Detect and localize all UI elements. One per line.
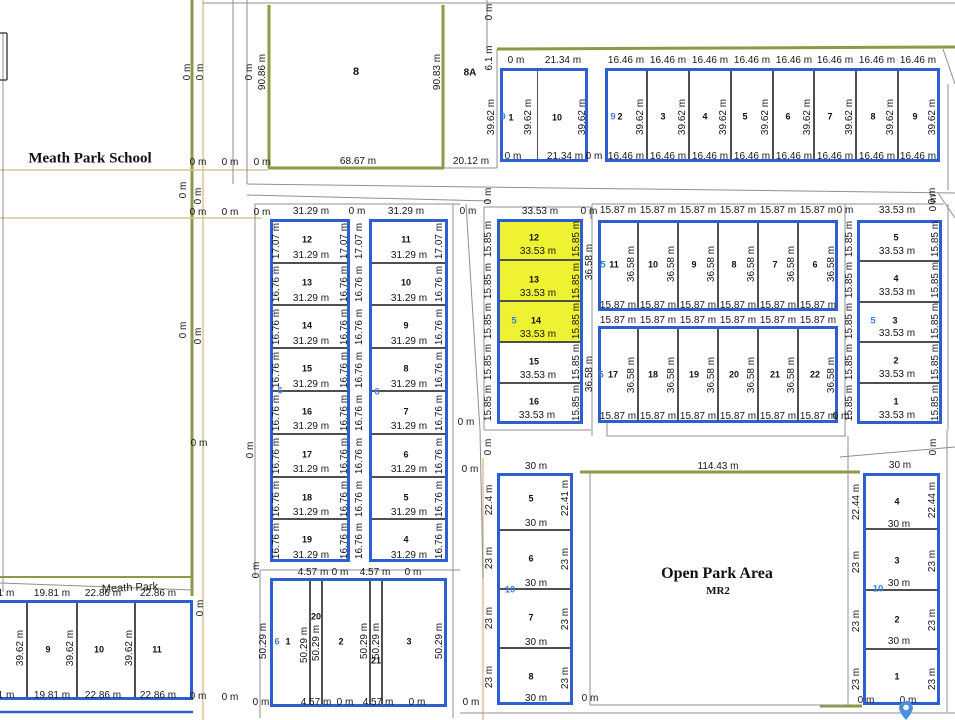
dimension-label: 33.53 m [879,329,915,339]
dimension-label: 15.87 m [680,316,716,326]
dimension-label: 16.76 m [435,523,445,559]
dimension-label: 0 m [245,64,255,81]
dimension-label: 15.87 m [760,412,796,422]
lot-number-label: 2 [893,357,898,366]
dimension-label: 23 m [852,610,862,632]
dimension-label: 33.53 m [520,371,556,381]
dimension-label: 15.87 m [800,412,836,422]
dimension-label: 0 m [485,4,495,21]
dimension-label: 31.29 m [391,294,427,304]
dimension-label: 15.87 m [800,206,836,216]
block-number-label: 6 [274,637,279,647]
dimension-label: 16.46 m [817,56,853,66]
dimension-label: 16.76 m [272,481,282,517]
dimension-label: 0 m [190,692,207,702]
dimension-label: 16.76 m [340,523,350,559]
dimension-label: 31.29 m [293,422,329,432]
dimension-label: 16.76 m [355,438,365,474]
dimension-label: 16.76 m [435,309,445,345]
dimension-label: 15.87 m [680,206,716,216]
dimension-label: 50.29 m [360,623,370,659]
dimension-label: 23 m [852,551,862,573]
dimension-label: 16.76 m [340,395,350,431]
lot-number-label: 20 [729,371,739,380]
dimension-label: 0 m [349,207,366,217]
dimension-label: 17.07 m [435,223,445,259]
dimension-label: 31.29 m [391,551,427,561]
plat-map: 0 m0 m0 m90.86 m90.83 m0 m6.1 m0 m0 m0 m… [0,0,955,720]
dimension-label: 36.58 m [787,246,797,282]
dimension-label: 20.12 m [453,157,489,167]
block-number-label: 5 [870,316,875,326]
dimension-label: 16.46 m [900,152,936,162]
dimension-label: 15.87 m [680,412,716,422]
lot-number-label: 18 [302,494,312,503]
dimension-label: 30 m [525,694,547,704]
lot-number-label: 11 [152,646,162,655]
dimension-label: 16.76 m [340,352,350,388]
lot-number-label: 8 [870,113,875,122]
lot-number-label: 4 [403,536,408,545]
dimension-label: 31.29 m [293,294,329,304]
dimension-label: 31.29 m [293,551,329,561]
dimension-label: 15.87 m [760,206,796,216]
dimension-label: 90.83 m [433,54,443,90]
dimension-label: 16.76 m [435,266,445,302]
labels-layer: 0 m0 m0 m90.86 m90.83 m0 m6.1 m0 m0 m0 m… [0,0,955,720]
dimension-label: 23 m [561,608,571,630]
dimension-label: 0 m [929,195,939,212]
lot-number-label: 16 [302,408,312,417]
dimension-label: 16.76 m [355,266,365,302]
dimension-label: 15.87 m [640,412,676,422]
dimension-label: 0 m [458,418,475,428]
dimension-label: 15.87 m [720,412,756,422]
dimension-label: 31.29 m [391,337,427,347]
dimension-label: 33.53 m [520,247,556,257]
dimension-label: 15.85 m [931,385,941,421]
dimension-label: 16.76 m [435,352,445,388]
dimension-label: 36.58 m [827,357,837,393]
dimension-label: 15.85 m [572,303,582,339]
dimension-label: 0 m [508,56,525,66]
dimension-label: 15.85 m [484,221,494,257]
lot-number-label: 20 [311,613,321,622]
dimension-label: 15.85 m [484,303,494,339]
dimension-label: 16.76 m [435,438,445,474]
dimension-label: 0 m [462,465,479,475]
block-number-label: 9 [610,112,615,122]
dimension-label: 22.86 m [85,691,121,701]
lot-number-label: 17 [302,451,312,460]
lot-number-label: 5 [742,113,747,122]
dimension-label: 15.85 m [931,303,941,339]
dimension-label: 15.87 m [800,301,836,311]
lot-number-label: 17 [608,371,618,380]
dimension-label: 15.87 m [760,301,796,311]
dimension-label: 15.87 m [600,301,636,311]
dimension-label: 15.87 m [640,206,676,216]
dimension-label: 16.46 m [650,56,686,66]
dimension-label: 30 m [525,638,547,648]
dimension-label: 15.87 m [600,412,636,422]
dimension-label: 15.85 m [845,262,855,298]
dimension-label: 0 m [222,208,239,218]
lot-number-label: 1 [285,638,290,647]
dimension-label: 0 m [179,182,189,199]
dimension-label: 0 m [405,568,422,578]
dimension-label: 36.58 m [667,246,677,282]
dimension-label: 16.46 m [734,152,770,162]
dimension-label: 114.43 m [698,462,739,472]
lot-number-label: 7 [772,261,777,270]
dimension-label: 16.46 m [608,56,644,66]
lot-number-label: 6 [812,261,817,270]
dimension-label: 1 m [0,589,14,599]
dimension-label: 0 m [254,158,271,168]
dimension-label: 33.53 m [879,288,915,298]
dimension-label: 16.46 m [817,152,853,162]
lot-number-label: 4 [893,275,898,284]
block-number-label: 6 [374,387,379,397]
lot-number-label: 11 [401,236,411,245]
dimension-label: 0 m [582,694,599,704]
lot-number-label: 10 [401,279,411,288]
lot-number-label: 13 [302,279,312,288]
dimension-label: 33.53 m [519,411,555,421]
dimension-label: 22.86 m [140,589,176,599]
dimension-label: 22.86 m [85,589,121,599]
dimension-label: 16.76 m [435,395,445,431]
dimension-label: 15.87 m [600,316,636,326]
dimension-label: 30 m [889,461,911,471]
lot-number-label: 9 [45,646,50,655]
lot-number-label: 19 [689,371,699,380]
dimension-label: 39.62 m [636,99,646,135]
dimension-label: 30 m [888,579,910,589]
dimension-label: 1 m [0,691,14,701]
dimension-label: 16.76 m [272,266,282,302]
dimension-label: 31.29 m [391,422,427,432]
lot-number-label: 5 [893,234,898,243]
dimension-label: 36.58 m [747,246,757,282]
dimension-label: 0 m [196,64,206,81]
block-number-label: 9 [500,112,505,122]
dimension-label: 31.29 m [293,380,329,390]
dimension-label: 0 m [194,328,204,345]
dimension-label: 0 m [246,442,256,459]
lot-number-label: 6 [785,113,790,122]
dimension-label: 15.87 m [640,316,676,326]
dimension-label: 15.85 m [572,344,582,380]
dimension-label: 4.57 m [298,568,329,578]
dimension-label: 39.62 m [886,99,896,135]
lot-number-label: 8 [403,365,408,374]
dimension-label: 36.58 m [787,357,797,393]
lot-number-label: 18 [648,371,658,380]
dimension-label: 30 m [888,637,910,647]
lot-number-label: 13 [529,276,539,285]
dimension-label: 0 m [337,698,354,708]
lot-number-label: 12 [529,234,539,243]
lot-number-label: 11 [609,261,619,270]
dimension-label: 16.76 m [340,438,350,474]
dimension-label: 0 m [484,188,494,205]
lot-number-label: 3 [660,113,665,122]
lot-number-label: 7 [403,408,408,417]
dimension-label: 31.29 m [293,207,329,217]
dimension-label: 23 m [485,607,495,629]
dimension-label: 33.53 m [520,289,556,299]
dimension-label: 16.76 m [355,395,365,431]
dimension-label: 15.85 m [572,221,582,257]
dimension-label: 19.81 m [34,691,70,701]
dimension-label: 16.76 m [435,481,445,517]
lot-number-label: 8 [731,261,736,270]
lot-number-label: 8 [528,673,533,682]
dimension-label: 15.87 m [720,301,756,311]
lot-number-label: 21 [770,371,780,380]
dimension-label: 39.62 m [678,99,688,135]
dimension-label: 4.57 m [301,698,332,708]
dimension-label: 16.76 m [355,481,365,517]
dimension-label: 16.76 m [355,352,365,388]
dimension-label: 15.85 m [572,263,582,299]
lot-number-label: 15 [529,358,539,367]
dimension-label: 23 m [561,548,571,570]
lot-number-label: 12 [302,236,312,245]
dimension-label: 39.62 m [845,99,855,135]
dimension-label: 4.57 m [360,568,391,578]
dimension-label: 16.76 m [355,309,365,345]
dimension-label: 0 m [253,698,270,708]
dimension-label: 0 m [252,562,262,579]
dimension-label: 16.76 m [272,395,282,431]
dimension-label: 39.62 m [66,630,76,666]
dimension-label: 15.85 m [572,385,582,421]
dimension-label: 17.07 m [340,223,350,259]
dimension-label: 50.29 m [300,627,310,663]
dimension-label: 0 m [196,600,206,617]
lot-number-label: 9 [912,113,917,122]
dimension-label: 0 m [179,322,189,339]
dimension-label: 0 m [484,439,494,456]
dimension-label: 23 m [928,668,938,690]
dimension-label: 15.85 m [845,303,855,339]
dimension-label: 39.62 m [16,630,26,666]
dimension-label: 22.86 m [140,691,176,701]
dimension-label: 23 m [928,550,938,572]
location-pin-icon[interactable] [899,701,913,720]
dimension-label: 36.58 m [585,244,595,280]
lot-number-label: 1 [508,114,513,123]
dimension-label: 15.85 m [484,344,494,380]
dimension-label: 23 m [561,667,571,689]
dimension-label: 0 m [191,439,208,449]
lot-number-label: 5 [403,494,408,503]
dimension-label: 15.85 m [845,385,855,421]
dimension-label: 21.34 m [547,152,583,162]
lot-number-label: 10 [94,646,104,655]
lot-number-label: 1 [894,673,899,682]
dimension-label: 0 m [581,207,598,217]
dimension-label: 15.87 m [640,301,676,311]
dimension-label: 0 m [586,152,603,162]
dimension-label: 16.76 m [340,266,350,302]
lot-number-label: 21 [371,657,381,666]
dimension-label: 15.87 m [720,316,756,326]
dimension-label: 16.46 m [859,56,895,66]
dimension-label: 50.29 m [312,625,322,661]
dimension-label: 30 m [525,579,547,589]
lot-number-label: 4 [702,113,707,122]
dimension-label: 33.53 m [522,207,558,217]
dimension-label: 39.62 m [719,99,729,135]
dimension-label: 16.46 m [776,56,812,66]
dimension-label: 22.44 m [852,484,862,520]
block-number-label: 5 [600,260,605,270]
block-number-label: 10 [505,585,516,595]
lot-number-label: 14 [531,317,541,326]
dimension-label: 30 m [525,519,547,529]
dimension-label: 39.62 m [761,99,771,135]
dimension-label: 4.57 m [363,698,394,708]
dimension-label: 0 m [837,206,854,216]
lot-number-label: 6 [403,451,408,460]
lot-number-label: 3 [892,317,897,326]
dimension-label: 39.62 m [524,99,534,135]
lot-number-label: 7 [827,113,832,122]
dimension-label: 16.46 m [859,152,895,162]
dimension-label: 31.29 m [391,508,427,518]
dimension-label: 16.46 m [650,152,686,162]
dimension-label: 15.87 m [680,301,716,311]
dimension-label: 16.76 m [272,523,282,559]
dimension-label: 0 m [194,188,204,205]
lot-number-label: 19 [302,536,312,545]
lot-number-label: 15 [302,365,312,374]
dimension-label: 0 m [190,208,207,218]
dimension-label: 0 m [858,696,875,706]
dimension-label: 23 m [485,666,495,688]
lot-number-label: 22 [810,371,820,380]
dimension-label: 36.58 m [627,246,637,282]
dimension-label: 31.29 m [391,251,427,261]
dimension-label: 0 m [254,208,271,218]
lot-number-label: 14 [302,322,312,331]
dimension-label: 36.58 m [667,357,677,393]
dimension-label: 15.85 m [931,344,941,380]
block-number-label: 10 [873,584,884,594]
lot-number-label: 2 [617,113,622,122]
lot-number-label: 16 [529,398,539,407]
lot-number-label: 3 [406,638,411,647]
dimension-label: 31.29 m [293,337,329,347]
dimension-label: 31.29 m [388,207,424,217]
block-number-label: 5 [598,370,603,380]
dimension-label: 15.87 m [800,316,836,326]
dimension-label: 23 m [485,547,495,569]
block-number-label: 6 [277,386,282,396]
dimension-label: 39.62 m [487,99,497,135]
dimension-label: 36.58 m [627,357,637,393]
dimension-label: 31.29 m [293,251,329,261]
dimension-label: 16.76 m [272,438,282,474]
dimension-label: 0 m [183,64,193,81]
dimension-label: 0 m [222,158,239,168]
dimension-label: 0 m [222,693,239,703]
lot-number-label: 4 [894,498,899,507]
dimension-label: 16.46 m [900,56,936,66]
dimension-label: 36.58 m [747,357,757,393]
lot-number-label: 10 [648,261,658,270]
dimension-label: 50.29 m [372,623,382,659]
dimension-label: 17.07 m [355,223,365,259]
dimension-label: 19.81 m [34,589,70,599]
dimension-label: 15.85 m [484,263,494,299]
dimension-label: 0 m [190,158,207,168]
lot-number-label: 10 [552,114,562,123]
dimension-label: 36.58 m [827,246,837,282]
dimension-label: 16.46 m [608,152,644,162]
dimension-label: 90.86 m [258,54,268,90]
dimension-label: 23 m [928,609,938,631]
block-number-label: 5 [511,316,516,326]
dimension-label: 15.85 m [931,262,941,298]
dimension-label: 16.46 m [734,56,770,66]
dimension-label: 33.53 m [879,247,915,257]
dimension-label: 36.58 m [585,356,595,392]
dimension-label: 39.62 m [578,99,588,135]
lot-number-label: 7 [528,614,533,623]
lot-number-label: 9 [403,322,408,331]
dimension-label: 0 m [505,152,522,162]
dimension-label: 39.62 m [125,630,135,666]
dimension-label: 16.76 m [340,481,350,517]
dimension-label: 33.53 m [879,411,915,421]
dimension-label: 31.29 m [293,508,329,518]
lot-number-label: 2 [894,616,899,625]
dimension-label: 39.62 m [803,99,813,135]
dimension-label: 6.1 m [485,45,495,70]
dimension-label: 33.53 m [879,370,915,380]
lot-number-label: 6 [528,555,533,564]
dimension-label: 16.76 m [355,523,365,559]
dimension-label: 31.29 m [391,380,427,390]
dimension-label: 33.53 m [879,206,915,216]
dimension-label: 15.85 m [845,344,855,380]
dimension-label: 68.67 m [340,157,376,167]
dimension-label: 0 m [929,439,939,456]
dimension-label: 15.87 m [760,316,796,326]
dimension-label: 17.07 m [272,223,282,259]
dimension-label: 50.29 m [259,623,269,659]
dimension-label: 36.58 m [707,357,717,393]
dimension-label: 15.85 m [845,221,855,257]
lot-number-label: 3 [894,557,899,566]
dimension-label: 0 m [463,698,480,708]
dimension-label: 16.76 m [272,309,282,345]
dimension-label: 30 m [888,520,910,530]
dimension-label: 0 m [460,207,477,217]
dimension-label: 33.53 m [520,330,556,340]
lot-number-label: 9 [691,261,696,270]
dimension-label: 36.58 m [707,246,717,282]
dimension-label: 22.44 m [928,482,938,518]
dimension-label: 22.41 m [561,480,571,516]
dimension-label: 0 m [409,698,426,708]
dimension-label: 15.87 m [720,206,756,216]
